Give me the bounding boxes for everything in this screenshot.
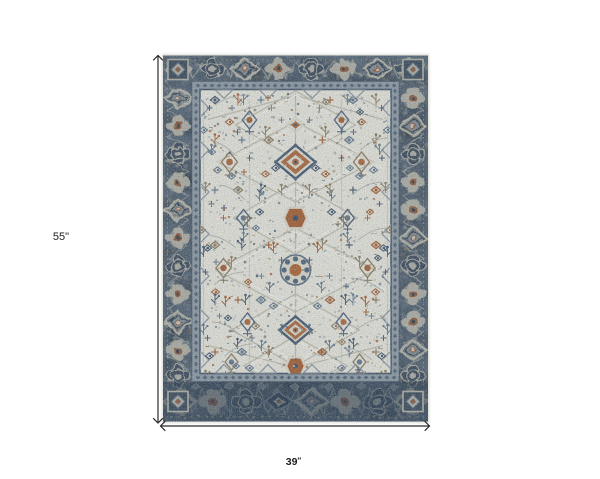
svg-text:55": 55"	[53, 231, 69, 243]
